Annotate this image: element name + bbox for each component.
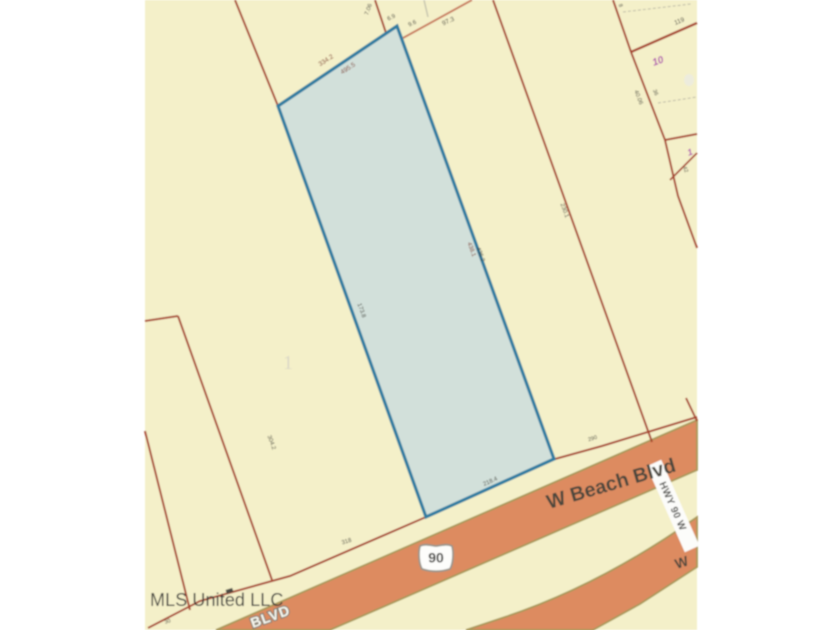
svg-text:1: 1 [283,352,293,374]
svg-text:90: 90 [428,550,444,566]
svg-text:MLS United LLC: MLS United LLC [150,590,283,610]
